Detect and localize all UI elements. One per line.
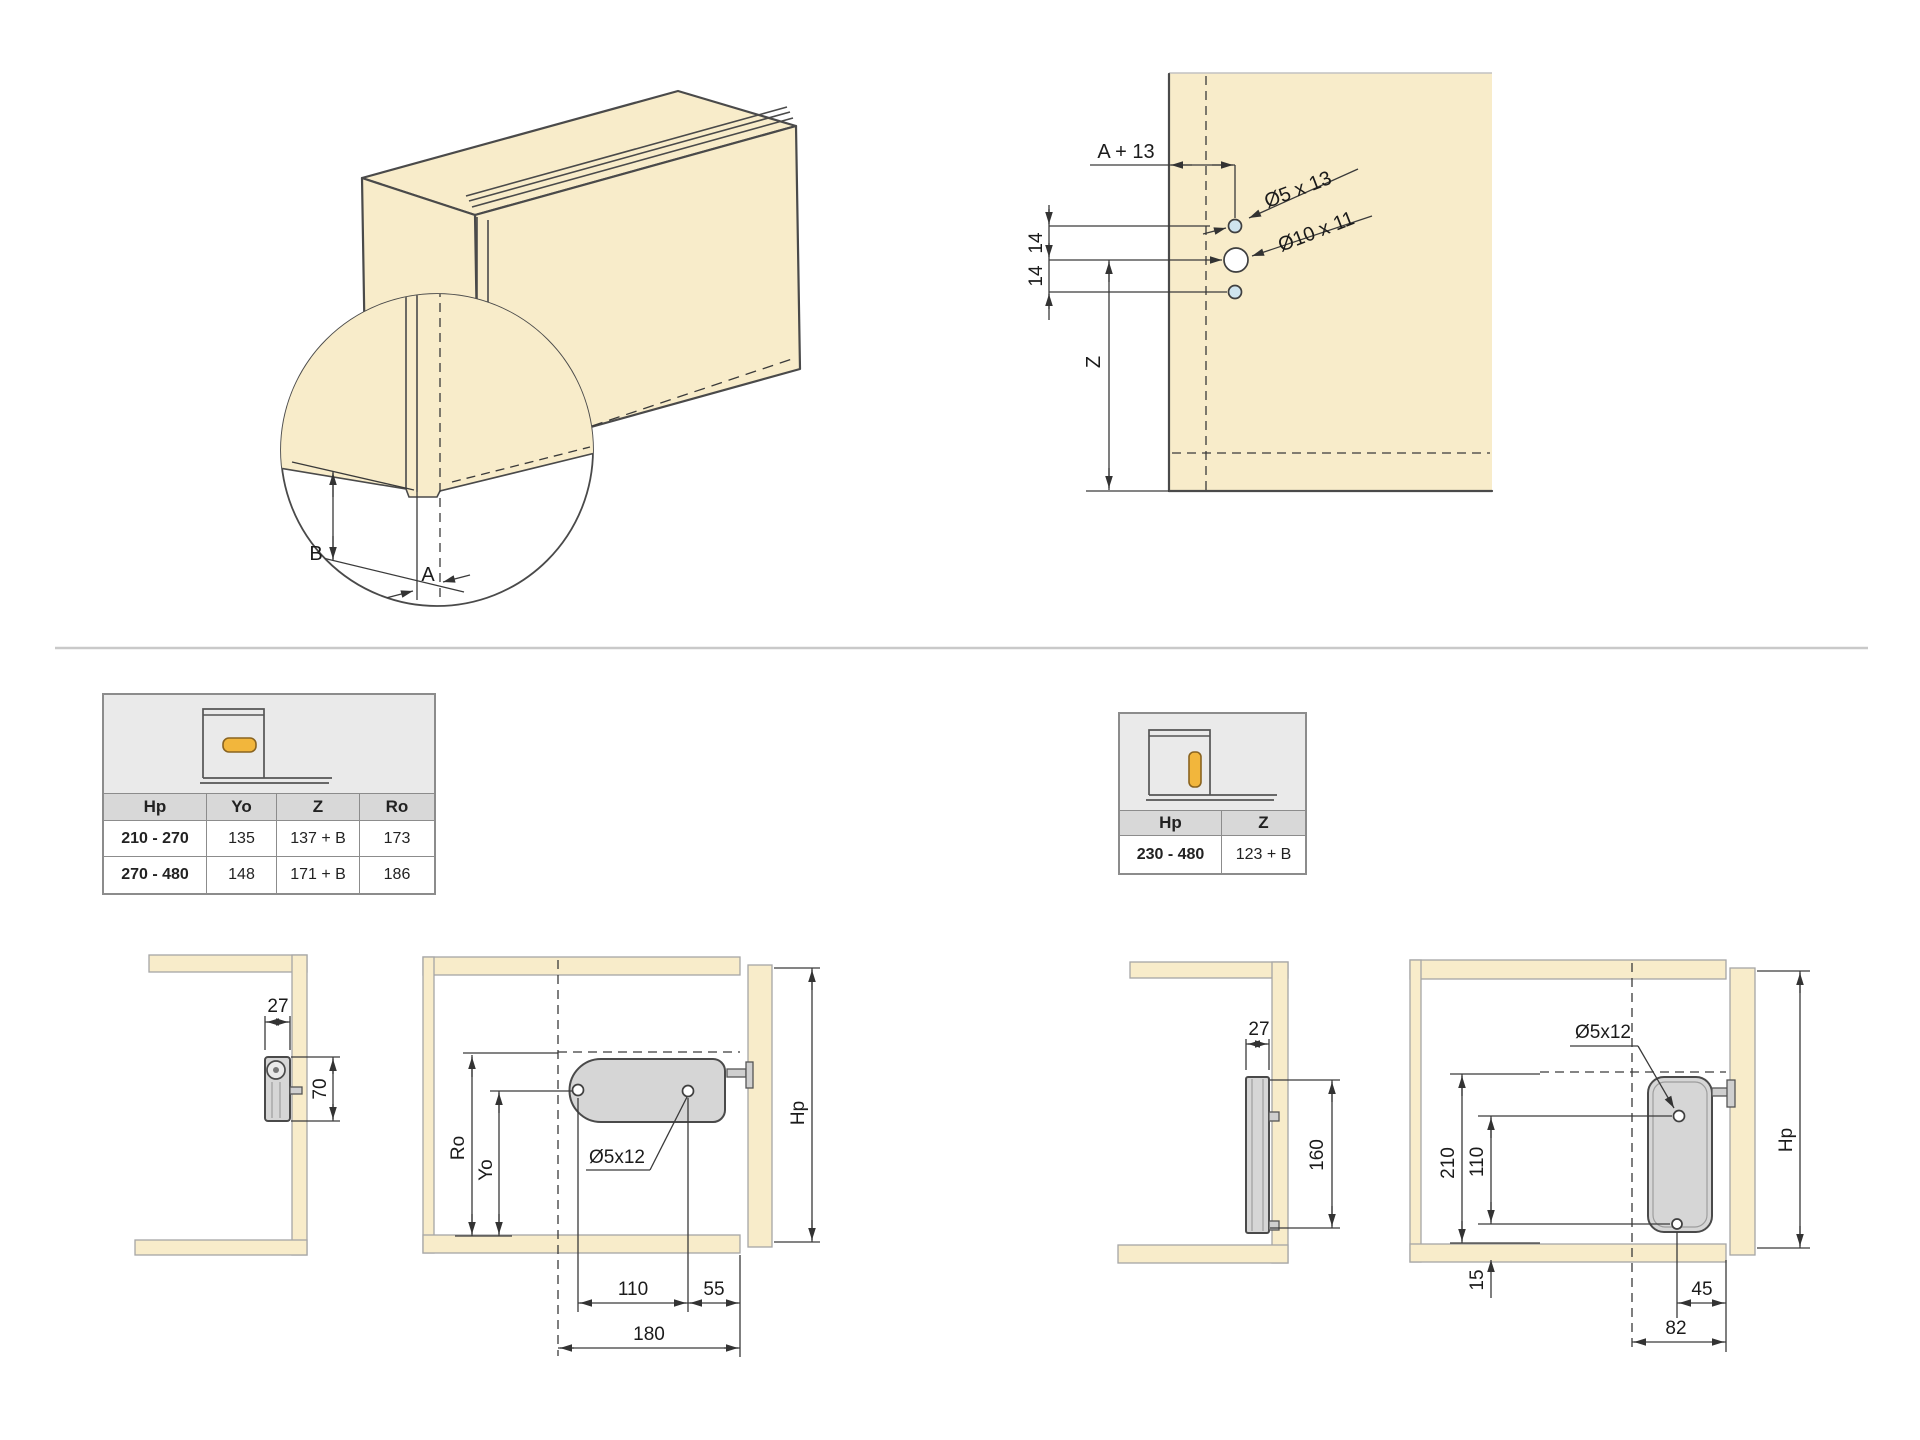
col-header-hp: Hp	[104, 794, 207, 821]
left-table-mini-drawing	[104, 695, 434, 793]
col-header-z: Z	[277, 794, 360, 821]
col-header-ro: Ro	[360, 794, 434, 821]
table-cell: 171 + B	[277, 857, 360, 893]
table-cell: 230 - 480	[1120, 836, 1222, 873]
dim-55-label: 55	[703, 1279, 724, 1300]
hole-5x12-label-right: Ø5x12	[1575, 1022, 1631, 1043]
right-table-mini-drawing	[1120, 714, 1305, 810]
hardware-icon-horizontal	[223, 738, 256, 752]
left-spec-table: Hp Yo Z Ro 210 - 270 135 137 + B 173 270…	[102, 693, 436, 895]
table-cell: 173	[360, 821, 434, 857]
dim-hp-label-left: Hp	[788, 1101, 809, 1125]
dim-27-label-right: 27	[1248, 1019, 1269, 1040]
col-header-yo: Yo	[207, 794, 277, 821]
dim-110-label-right: 110	[1467, 1147, 1488, 1177]
dim-110-label-left: 110	[618, 1279, 648, 1300]
right-front-view-drawing: Ø5x12 210 110 15 45 82 Hp	[1410, 960, 1810, 1352]
dim-hp-label-right: Hp	[1776, 1128, 1797, 1152]
dim-ro-label: Ro	[448, 1136, 469, 1160]
hardware-icon-vertical	[1189, 752, 1201, 787]
drilling-template-drawing: A + 13 Ø5 x 13 Ø10 x 11 14 14 Z	[1026, 73, 1492, 491]
dim-180-label: 180	[633, 1324, 665, 1345]
dim-14b-label: 14	[1026, 265, 1047, 287]
table-cell: 135	[207, 821, 277, 857]
hole-5x12-label-left: Ø5x12	[589, 1147, 645, 1168]
dim-82-label: 82	[1665, 1318, 1686, 1339]
dim-yo-label: Yo	[476, 1159, 497, 1181]
dim-15-label: 15	[1467, 1269, 1488, 1290]
table-cell: 123 + B	[1222, 836, 1305, 873]
dim-210-label: 210	[1438, 1147, 1459, 1179]
col-header-hp-right: Hp	[1120, 811, 1222, 836]
dim-14a-label: 14	[1026, 232, 1047, 254]
installation-diagram-page: B A A + 13 Ø5 x 13 Ø10 x 11	[0, 0, 1920, 1440]
table-cell: 148	[207, 857, 277, 893]
dim-70-label: 70	[310, 1078, 331, 1099]
dim-a13-label: A + 13	[1097, 141, 1154, 163]
left-table-diagram	[104, 695, 434, 794]
dim-27-label: 27	[267, 996, 288, 1017]
dim-45-label: 45	[1691, 1279, 1712, 1300]
dim-z-label: Z	[1083, 356, 1105, 368]
right-table-diagram	[1120, 714, 1305, 811]
dim-160-label: 160	[1307, 1139, 1328, 1171]
table-cell: 270 - 480	[104, 857, 207, 893]
table-cell: 210 - 270	[104, 821, 207, 857]
right-side-view-drawing: 27 160	[1118, 962, 1340, 1263]
left-side-view-drawing: 27 70	[135, 955, 340, 1255]
dim-a-label: A	[421, 564, 435, 586]
right-spec-table: Hp Z 230 - 480 123 + B	[1118, 712, 1307, 875]
col-header-z-right: Z	[1222, 811, 1305, 836]
dim-b-label: B	[309, 543, 322, 565]
table-cell: 137 + B	[277, 821, 360, 857]
table-cell: 186	[360, 857, 434, 893]
left-front-view-drawing: Ro Yo Ø5x12 110 55 180 Hp	[423, 957, 820, 1357]
